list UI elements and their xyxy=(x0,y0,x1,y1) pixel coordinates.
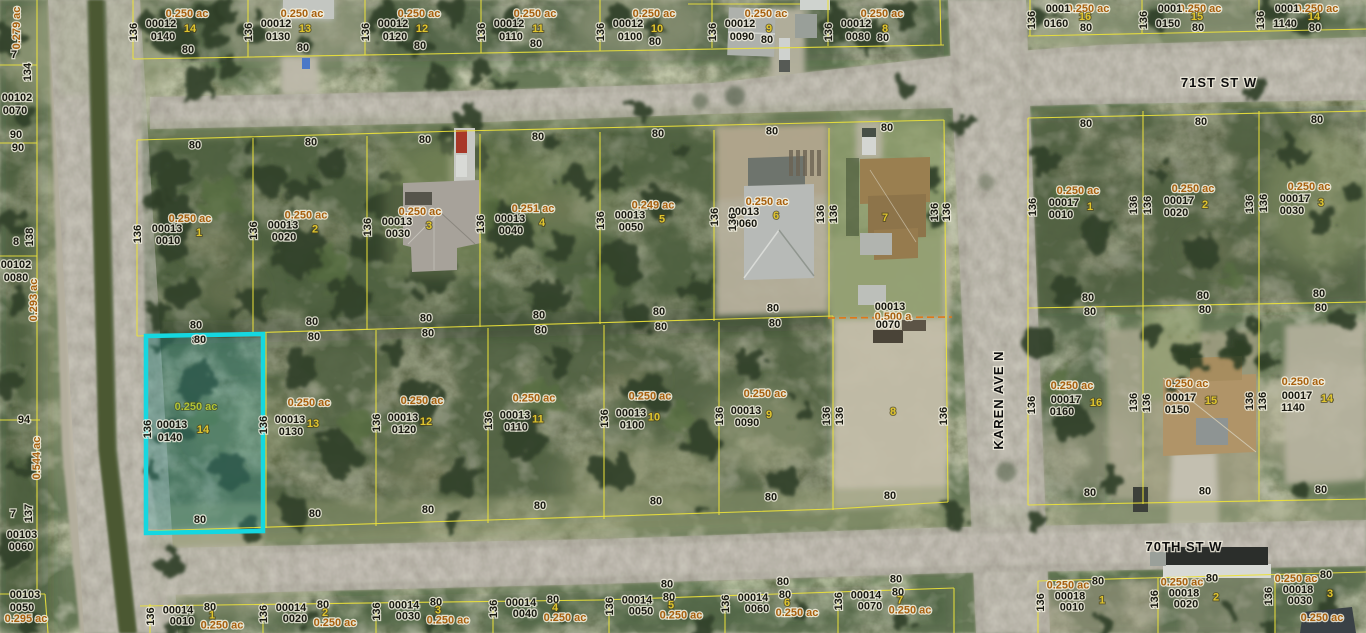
svg-text:136: 136 xyxy=(727,213,739,231)
svg-text:80: 80 xyxy=(1320,569,1332,581)
svg-text:80: 80 xyxy=(420,313,432,325)
svg-text:2: 2 xyxy=(1202,199,1208,211)
svg-text:0070: 0070 xyxy=(858,600,882,612)
svg-text:0020: 0020 xyxy=(283,613,307,625)
svg-text:80: 80 xyxy=(1192,22,1204,34)
svg-text:0030: 0030 xyxy=(396,610,420,622)
svg-text:80: 80 xyxy=(194,334,206,346)
svg-text:0.295 ac: 0.295 ac xyxy=(5,613,48,625)
svg-text:0060: 0060 xyxy=(745,603,769,615)
svg-text:80: 80 xyxy=(1080,22,1092,34)
svg-text:136: 136 xyxy=(709,208,721,226)
svg-text:80: 80 xyxy=(1195,116,1207,128)
svg-text:80: 80 xyxy=(766,125,778,137)
svg-text:00013: 00013 xyxy=(275,414,306,426)
svg-text:136: 136 xyxy=(488,600,500,618)
svg-text:0.250 ac: 0.250 ac xyxy=(1057,185,1100,197)
svg-text:10: 10 xyxy=(648,411,660,423)
svg-text:00012: 00012 xyxy=(146,18,177,30)
svg-text:80: 80 xyxy=(1197,290,1209,302)
svg-text:136: 136 xyxy=(1244,195,1256,213)
svg-text:80: 80 xyxy=(535,324,547,336)
svg-text:8: 8 xyxy=(890,406,896,418)
svg-text:00017: 00017 xyxy=(1049,197,1080,209)
svg-text:136: 136 xyxy=(815,205,827,223)
svg-text:80: 80 xyxy=(1084,487,1096,499)
svg-text:136: 136 xyxy=(475,215,487,233)
svg-text:136: 136 xyxy=(1258,194,1270,212)
svg-text:136: 136 xyxy=(1149,590,1161,608)
svg-text:136: 136 xyxy=(476,23,488,41)
svg-text:0.250 ac: 0.250 ac xyxy=(513,393,556,405)
svg-text:0.250 ac: 0.250 ac xyxy=(288,397,331,409)
svg-text:0.250 ac: 0.250 ac xyxy=(1288,181,1331,193)
svg-text:136: 136 xyxy=(929,203,941,221)
svg-text:80: 80 xyxy=(1315,484,1327,496)
svg-text:136: 136 xyxy=(258,416,270,434)
svg-text:0.250 ac: 0.250 ac xyxy=(201,619,244,631)
svg-text:0030: 0030 xyxy=(386,228,410,240)
svg-text:0110: 0110 xyxy=(504,422,528,434)
svg-text:136: 136 xyxy=(360,23,372,41)
svg-text:136: 136 xyxy=(371,414,383,432)
svg-text:0120: 0120 xyxy=(392,424,416,436)
svg-text:0150: 0150 xyxy=(1165,404,1189,416)
svg-text:136: 136 xyxy=(483,411,495,429)
svg-text:80: 80 xyxy=(769,318,781,330)
svg-text:00017: 00017 xyxy=(1280,193,1311,205)
svg-text:80: 80 xyxy=(655,321,667,333)
svg-text:136: 136 xyxy=(941,203,953,221)
svg-text:0030: 0030 xyxy=(1280,205,1304,217)
svg-text:0.250 ac: 0.250 ac xyxy=(744,388,787,400)
svg-text:00017: 00017 xyxy=(1282,390,1313,402)
svg-text:1: 1 xyxy=(1099,594,1105,606)
svg-text:80: 80 xyxy=(877,32,889,44)
svg-text:136: 136 xyxy=(371,602,383,620)
svg-text:0020: 0020 xyxy=(272,232,296,244)
svg-text:136: 136 xyxy=(1128,393,1140,411)
svg-text:0010: 0010 xyxy=(170,615,194,627)
svg-text:80: 80 xyxy=(767,303,779,315)
svg-text:136: 136 xyxy=(604,597,616,615)
svg-text:00013: 00013 xyxy=(616,407,647,419)
svg-text:80: 80 xyxy=(777,576,789,588)
svg-text:16: 16 xyxy=(1090,397,1102,409)
svg-text:80: 80 xyxy=(414,40,426,52)
svg-text:136: 136 xyxy=(938,407,950,425)
svg-text:0050: 0050 xyxy=(629,605,653,617)
svg-text:00013: 00013 xyxy=(615,209,646,221)
svg-text:136: 136 xyxy=(833,592,845,610)
svg-text:136: 136 xyxy=(823,23,835,41)
svg-text:3: 3 xyxy=(426,220,432,232)
svg-text:80: 80 xyxy=(1315,302,1327,314)
svg-text:80: 80 xyxy=(306,316,318,328)
svg-text:80: 80 xyxy=(182,44,194,56)
svg-text:0100: 0100 xyxy=(620,419,644,431)
svg-text:80: 80 xyxy=(305,137,317,149)
svg-text:0070: 0070 xyxy=(876,319,900,331)
svg-text:138: 138 xyxy=(24,228,36,246)
svg-text:0090: 0090 xyxy=(730,31,754,43)
svg-text:136: 136 xyxy=(142,420,154,438)
svg-text:70TH ST W: 70TH ST W xyxy=(1146,539,1223,554)
svg-text:9: 9 xyxy=(766,409,772,421)
svg-text:0001: 0001 xyxy=(1275,3,1299,15)
svg-text:0.250 ac: 0.250 ac xyxy=(1166,378,1209,390)
svg-text:0.250 ac: 0.250 ac xyxy=(776,607,819,619)
svg-text:136: 136 xyxy=(1128,196,1140,214)
svg-text:136: 136 xyxy=(1027,198,1039,216)
svg-text:0070: 0070 xyxy=(3,105,27,117)
svg-text:1: 1 xyxy=(196,227,202,239)
svg-text:0.250 ac: 0.250 ac xyxy=(175,401,218,413)
svg-text:136: 136 xyxy=(1026,11,1038,29)
svg-text:136: 136 xyxy=(1257,392,1269,410)
svg-text:80: 80 xyxy=(422,504,434,516)
svg-text:80: 80 xyxy=(1309,22,1321,34)
svg-text:80: 80 xyxy=(1311,114,1323,126)
svg-text:80: 80 xyxy=(297,42,309,54)
svg-text:3: 3 xyxy=(1318,197,1324,209)
svg-text:12: 12 xyxy=(420,416,432,428)
svg-text:00017: 00017 xyxy=(1166,392,1197,404)
svg-text:136: 136 xyxy=(1244,392,1256,410)
svg-text:0.250 ac: 0.250 ac xyxy=(314,617,357,629)
svg-text:00013: 00013 xyxy=(152,223,183,235)
svg-text:0040: 0040 xyxy=(513,608,537,620)
svg-text:136: 136 xyxy=(720,595,732,613)
svg-text:00017: 00017 xyxy=(1051,394,1082,406)
svg-text:00012: 00012 xyxy=(494,18,525,30)
svg-text:136: 136 xyxy=(828,205,840,223)
svg-text:80: 80 xyxy=(422,328,434,340)
svg-text:0020: 0020 xyxy=(1164,207,1188,219)
svg-text:0.250 ac: 0.250 ac xyxy=(660,609,703,621)
svg-text:80: 80 xyxy=(1092,575,1104,587)
svg-text:7: 7 xyxy=(10,508,16,520)
svg-text:136: 136 xyxy=(1263,587,1275,605)
svg-text:136: 136 xyxy=(132,225,144,243)
svg-text:6: 6 xyxy=(773,210,779,222)
svg-text:80: 80 xyxy=(1082,292,1094,304)
svg-text:136: 136 xyxy=(248,221,260,239)
svg-text:0010: 0010 xyxy=(1049,209,1073,221)
svg-text:80: 80 xyxy=(309,508,321,520)
svg-text:80: 80 xyxy=(530,38,542,50)
svg-text:80: 80 xyxy=(533,309,545,321)
svg-text:80: 80 xyxy=(1080,118,1092,130)
svg-text:0.250 ac: 0.250 ac xyxy=(629,390,672,402)
svg-text:11: 11 xyxy=(532,23,544,35)
svg-text:0001: 0001 xyxy=(1046,3,1070,15)
svg-text:80: 80 xyxy=(649,36,661,48)
svg-text:80: 80 xyxy=(1084,306,1096,318)
svg-text:80: 80 xyxy=(1206,572,1218,584)
svg-text:00013: 00013 xyxy=(157,419,188,431)
svg-text:94: 94 xyxy=(18,414,31,426)
svg-text:0120: 0120 xyxy=(383,31,407,43)
svg-text:13: 13 xyxy=(307,418,319,430)
svg-text:0130: 0130 xyxy=(279,426,303,438)
svg-text:0160: 0160 xyxy=(1050,406,1074,418)
svg-text:136: 136 xyxy=(595,23,607,41)
svg-text:136: 136 xyxy=(821,407,833,425)
svg-text:00017: 00017 xyxy=(1164,195,1195,207)
svg-text:80: 80 xyxy=(419,134,431,146)
svg-text:137: 137 xyxy=(23,504,35,522)
svg-text:14: 14 xyxy=(1321,393,1334,405)
svg-text:0100: 0100 xyxy=(618,31,642,43)
svg-text:0060: 0060 xyxy=(9,541,33,553)
svg-text:14: 14 xyxy=(184,23,197,35)
svg-text:0140: 0140 xyxy=(158,432,182,444)
svg-text:11: 11 xyxy=(532,414,544,426)
svg-text:80: 80 xyxy=(1199,304,1211,316)
svg-text:0.250 ac: 0.250 ac xyxy=(1051,380,1094,392)
svg-text:00013: 00013 xyxy=(731,405,762,417)
svg-text:0.544 ac: 0.544 ac xyxy=(31,437,43,480)
svg-text:KAREN AVE N: KAREN AVE N xyxy=(991,350,1006,449)
svg-text:00012: 00012 xyxy=(378,18,409,30)
svg-text:4: 4 xyxy=(539,217,546,229)
svg-text:0001: 0001 xyxy=(1158,3,1182,15)
svg-text:136: 136 xyxy=(1138,11,1150,29)
svg-text:136: 136 xyxy=(243,23,255,41)
svg-text:80: 80 xyxy=(661,578,673,590)
svg-text:15: 15 xyxy=(1205,395,1217,407)
svg-text:136: 136 xyxy=(258,605,270,623)
svg-text:1140: 1140 xyxy=(1273,18,1297,30)
svg-text:136: 136 xyxy=(145,607,157,625)
svg-text:00103: 00103 xyxy=(7,529,38,541)
svg-text:0010: 0010 xyxy=(156,235,180,247)
svg-text:00013: 00013 xyxy=(388,412,419,424)
svg-text:136: 136 xyxy=(595,211,607,229)
svg-text:80: 80 xyxy=(1313,288,1325,300)
svg-text:0.250 ac: 0.250 ac xyxy=(544,612,587,624)
svg-text:80: 80 xyxy=(190,319,202,331)
svg-text:80: 80 xyxy=(532,131,544,143)
svg-text:136: 136 xyxy=(1141,394,1153,412)
svg-text:10: 10 xyxy=(651,23,663,35)
svg-text:0140: 0140 xyxy=(151,31,175,43)
svg-text:0.250 ac: 0.250 ac xyxy=(427,614,470,626)
svg-text:00013: 00013 xyxy=(500,410,531,422)
svg-text:0110: 0110 xyxy=(499,31,523,43)
svg-text:136: 136 xyxy=(128,23,140,41)
svg-text:136: 136 xyxy=(714,407,726,425)
svg-text:7: 7 xyxy=(882,212,888,224)
svg-text:136: 136 xyxy=(1142,196,1154,214)
svg-text:80: 80 xyxy=(890,573,902,585)
svg-text:136: 136 xyxy=(599,409,611,427)
svg-text:0.250 ac: 0.250 ac xyxy=(1172,183,1215,195)
svg-text:80: 80 xyxy=(650,496,662,508)
svg-text:80: 80 xyxy=(1199,486,1211,498)
svg-text:1140: 1140 xyxy=(1281,402,1305,414)
svg-text:90: 90 xyxy=(12,142,24,154)
svg-text:80: 80 xyxy=(189,140,201,152)
svg-text:80: 80 xyxy=(534,500,546,512)
svg-text:80: 80 xyxy=(884,490,896,502)
svg-text:00012: 00012 xyxy=(725,18,756,30)
svg-text:00013: 00013 xyxy=(268,220,299,232)
svg-text:00103: 00103 xyxy=(10,589,41,601)
svg-text:0010: 0010 xyxy=(1060,601,1084,613)
svg-text:12: 12 xyxy=(416,23,428,35)
svg-text:80: 80 xyxy=(761,34,773,46)
svg-text:134: 134 xyxy=(22,62,34,81)
svg-text:8: 8 xyxy=(13,236,19,248)
svg-text:3: 3 xyxy=(1327,588,1333,600)
svg-text:0160: 0160 xyxy=(1044,18,1068,30)
svg-text:0.250 ac: 0.250 ac xyxy=(1301,612,1344,624)
svg-text:00102: 00102 xyxy=(2,92,33,104)
svg-text:80: 80 xyxy=(881,122,893,134)
svg-text:2: 2 xyxy=(312,224,318,236)
svg-text:00102: 00102 xyxy=(1,259,32,271)
svg-text:71ST ST W: 71ST ST W xyxy=(1181,75,1257,90)
svg-text:80: 80 xyxy=(652,128,664,140)
svg-text:1: 1 xyxy=(1087,201,1093,213)
svg-text:00012: 00012 xyxy=(613,18,644,30)
svg-text:0.250 ac: 0.250 ac xyxy=(401,395,444,407)
svg-text:13: 13 xyxy=(299,23,311,35)
svg-text:00012: 00012 xyxy=(841,18,872,30)
svg-text:14: 14 xyxy=(197,424,210,436)
svg-text:136: 136 xyxy=(707,23,719,41)
svg-text:0.250 ac: 0.250 ac xyxy=(1282,376,1325,388)
svg-text:0150: 0150 xyxy=(1156,18,1180,30)
svg-text:0.279 ac: 0.279 ac xyxy=(11,7,23,50)
svg-text:0080: 0080 xyxy=(846,31,870,43)
svg-text:80: 80 xyxy=(653,306,665,318)
svg-text:0130: 0130 xyxy=(266,31,290,43)
svg-text:00012: 00012 xyxy=(261,18,292,30)
svg-text:5: 5 xyxy=(659,213,665,225)
svg-text:90: 90 xyxy=(10,129,22,141)
svg-text:80: 80 xyxy=(194,514,206,526)
svg-text:0030: 0030 xyxy=(1288,595,1312,607)
svg-text:0.250 ac: 0.250 ac xyxy=(889,604,932,616)
svg-text:136: 136 xyxy=(1255,11,1267,29)
svg-text:0090: 0090 xyxy=(735,417,759,429)
svg-text:136: 136 xyxy=(834,407,846,425)
svg-text:80: 80 xyxy=(308,331,320,343)
svg-text:136: 136 xyxy=(362,218,374,236)
svg-text:0040: 0040 xyxy=(499,225,523,237)
svg-text:00013: 00013 xyxy=(382,216,413,228)
svg-text:136: 136 xyxy=(1035,593,1047,611)
svg-text:136: 136 xyxy=(1026,396,1038,414)
svg-text:2: 2 xyxy=(1213,591,1219,603)
svg-text:0080: 0080 xyxy=(4,272,28,284)
svg-text:0020: 0020 xyxy=(1174,598,1198,610)
svg-text:0050: 0050 xyxy=(619,221,643,233)
svg-text:80: 80 xyxy=(765,491,777,503)
svg-text:0.293 ac: 0.293 ac xyxy=(28,279,40,322)
svg-text:7: 7 xyxy=(11,49,17,61)
svg-text:00013: 00013 xyxy=(495,213,526,225)
